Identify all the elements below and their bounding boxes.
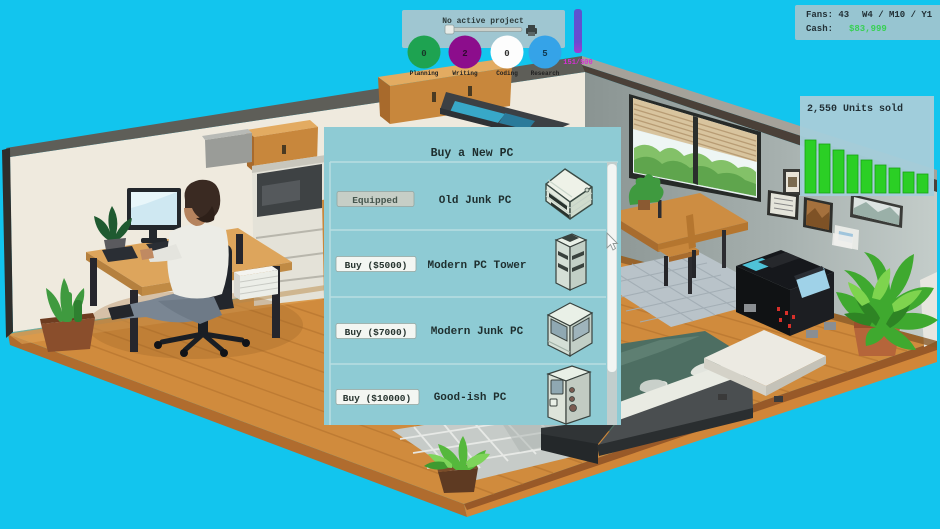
- svg-text:Good-ish PC: Good-ish PC: [434, 392, 507, 404]
- svg-text:Coding: Coding: [496, 70, 518, 77]
- svg-text:Old Junk PC: Old Junk PC: [439, 195, 512, 207]
- svg-text:Buy ($7000): Buy ($7000): [345, 327, 408, 338]
- svg-text:Research: Research: [531, 70, 560, 77]
- svg-text:Planning: Planning: [410, 70, 439, 77]
- svg-text:Buy a New PC: Buy a New PC: [431, 147, 514, 160]
- svg-text:W4 / M10 / Y1: W4 / M10 / Y1: [862, 10, 933, 20]
- svg-text:Modern PC Tower: Modern PC Tower: [427, 260, 526, 272]
- svg-text:Writing: Writing: [452, 70, 478, 77]
- svg-text:Equipped: Equipped: [352, 195, 398, 206]
- svg-text:$83,999: $83,999: [849, 24, 887, 34]
- svg-text:2: 2: [462, 49, 467, 59]
- svg-text:Modern Junk PC: Modern Junk PC: [431, 326, 524, 338]
- svg-text:0: 0: [421, 49, 426, 59]
- svg-text:0: 0: [504, 49, 509, 59]
- svg-text:Buy ($10000): Buy ($10000): [343, 393, 411, 404]
- svg-text:2,550 Units sold: 2,550 Units sold: [807, 103, 903, 115]
- svg-text:151/500: 151/500: [563, 59, 592, 67]
- svg-text:Buy ($5000): Buy ($5000): [345, 260, 408, 271]
- svg-text:No active project: No active project: [442, 17, 524, 26]
- svg-text:Fans: 43: Fans: 43: [806, 10, 849, 20]
- svg-text:5: 5: [542, 49, 547, 59]
- svg-text:Cash:: Cash:: [806, 24, 833, 34]
